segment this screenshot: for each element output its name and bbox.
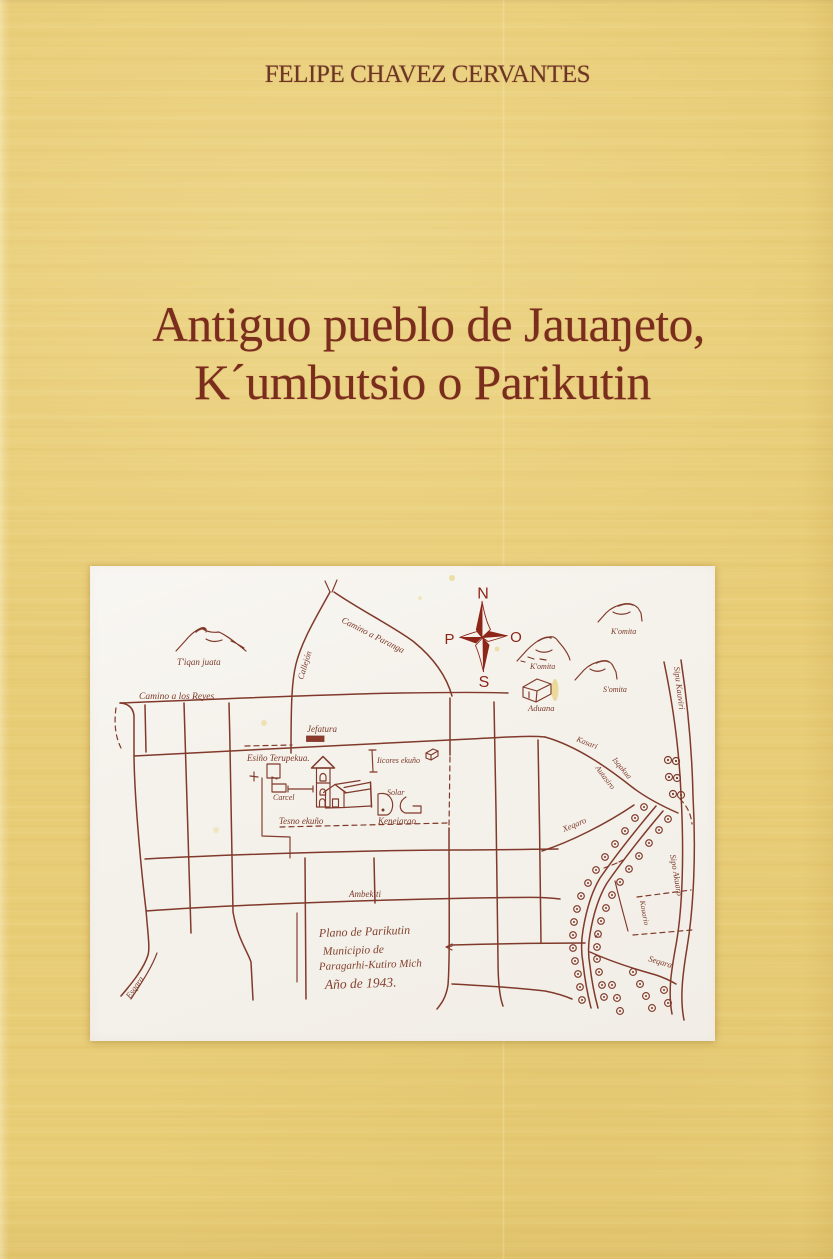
svg-text:Solar: Solar [387,788,405,797]
svg-text:K'omita: K'omita [610,627,636,636]
svg-text:Aduana: Aduana [527,703,554,713]
svg-text:N: N [477,586,489,603]
svg-text:Municipio de: Municipio de [322,944,384,958]
svg-text:S'omita: S'omita [603,685,627,694]
svg-text:Plano de Parikutin: Plano de Parikutin [318,923,411,940]
svg-text:Kasari: Kasari [574,734,599,751]
svg-text:Esqara: Esqara [123,974,146,1001]
svg-text:Jefatura: Jefatura [307,724,337,734]
svg-text:Seqara: Seqara [647,953,673,970]
svg-text:Esiño Terupekua.: Esiño Terupekua. [246,753,310,763]
svg-text:K'omita: K'omita [529,662,555,671]
svg-text:Isqakua: Isqakua [610,755,634,781]
svg-text:Xeqaro: Xeqaro [560,815,588,834]
svg-text:Sipu Kauviri: Sipu Kauviri [672,666,687,711]
svg-text:Iicores ekuño: Iicores ekuño [376,756,420,765]
svg-text:Camino a los Reyes: Camino a los Reyes [139,692,215,702]
svg-text:T'iqan juata: T'iqan juata [177,657,221,667]
svg-text:O: O [510,629,522,646]
svg-text:Camino a Paranga: Camino a Paranga [340,615,406,655]
svg-text:Ambekiti: Ambekiti [348,889,381,899]
svg-text:Carcel: Carcel [273,793,295,802]
svg-text:Kauario: Kauario [638,899,651,926]
svg-text:Tesno ekuño: Tesno ekuño [279,816,324,826]
svg-text:Keneiarao: Keneiarao [377,816,416,826]
svg-text:P: P [444,631,454,648]
svg-text:Paragarhi-Kutiro Mich: Paragarhi-Kutiro Mich [318,957,423,973]
svg-text:S: S [479,674,490,691]
svg-text:Callejón: Callejón [295,650,313,681]
svg-text:Año de 1943.: Año de 1943. [324,975,397,993]
